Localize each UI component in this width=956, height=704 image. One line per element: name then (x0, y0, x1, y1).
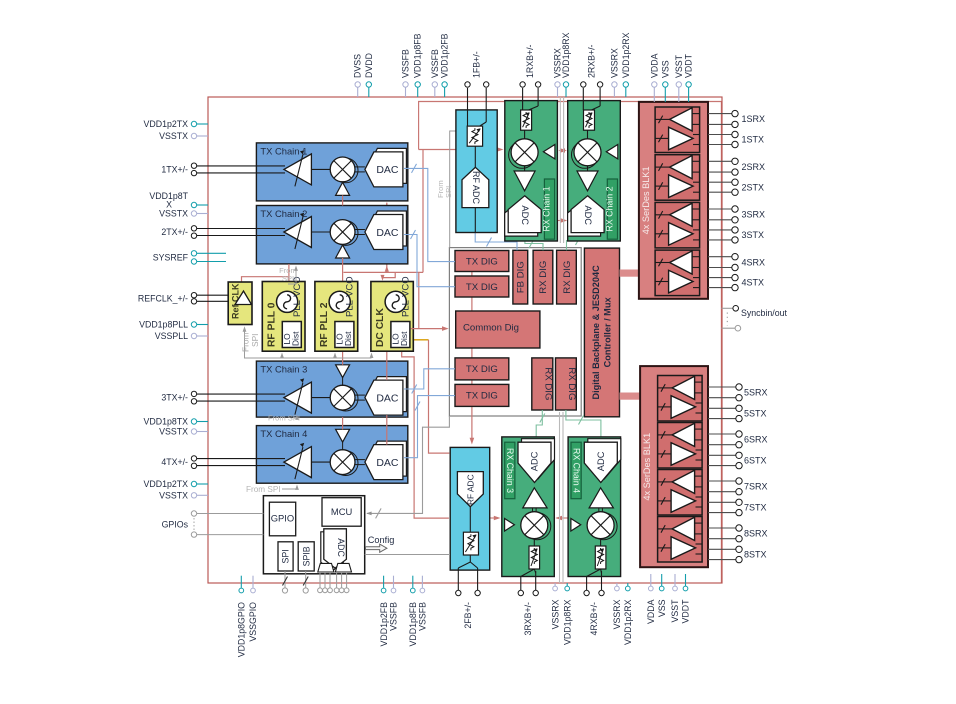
svg-text:TX Chain 1: TX Chain 1 (260, 145, 307, 156)
svg-text:1RXB+/-: 1RXB+/- (525, 44, 535, 78)
svg-text:Dist: Dist (399, 331, 409, 346)
svg-text:5STX: 5STX (744, 409, 767, 419)
svg-text:TX DIG: TX DIG (466, 364, 498, 375)
svg-text:TX DIG: TX DIG (466, 282, 498, 293)
svg-text:Dist: Dist (290, 331, 300, 346)
svg-text:VDD1p2RX: VDD1p2RX (621, 32, 631, 78)
svg-text:RX DIG: RX DIG (566, 367, 577, 400)
svg-text:1STX: 1STX (742, 135, 765, 145)
svg-text:2FB+/-: 2FB+/- (463, 602, 473, 629)
svg-text:VDD1p2FB: VDD1p2FB (440, 33, 450, 78)
svg-text:4STX: 4STX (742, 278, 765, 288)
svg-text:4RXB+/-: 4RXB+/- (589, 602, 599, 636)
svg-text:5SRX: 5SRX (744, 388, 768, 398)
svg-text:VSSTX: VSSTX (159, 209, 188, 219)
svg-text:VDD1p8GPIO: VDD1p8GPIO (237, 602, 247, 657)
svg-text:SPI: SPI (250, 334, 260, 348)
svg-text:6SRX: 6SRX (744, 435, 768, 445)
svg-text:2RXB+/-: 2RXB+/- (587, 44, 597, 78)
svg-text:1TX+/-: 1TX+/- (161, 165, 188, 175)
svg-text:VDD1p8RX: VDD1p8RX (562, 599, 572, 645)
svg-text:SPIB: SPIB (301, 546, 311, 566)
svg-text:VDD1p8FB: VDD1p8FB (408, 602, 418, 647)
svg-text:TX Chain 2: TX Chain 2 (260, 208, 307, 219)
svg-text:SYSREF: SYSREF (153, 252, 189, 262)
svg-text:8STX: 8STX (744, 550, 767, 560)
svg-text:ADC: ADC (520, 205, 530, 225)
svg-text:SPI: SPI (444, 186, 453, 198)
svg-text:2STX: 2STX (742, 182, 765, 192)
svg-text:VSSRX: VSSRX (609, 48, 619, 78)
svg-text:RF ADC: RF ADC (471, 171, 481, 205)
svg-text:DC CLK: DC CLK (375, 308, 386, 347)
svg-text:TX DIG: TX DIG (466, 391, 498, 402)
svg-text:2TX+/-: 2TX+/- (161, 227, 188, 237)
svg-text:3RXB+/-: 3RXB+/- (523, 602, 533, 636)
svg-text:From: From (241, 332, 251, 352)
svg-text:Syncbin/out: Syncbin/out (741, 308, 788, 318)
svg-text:Digital Backplane & JESD204C: Digital Backplane & JESD204C (591, 265, 601, 400)
svg-text:VSSFB: VSSFB (389, 602, 399, 631)
svg-text:VSSFB: VSSFB (401, 49, 411, 78)
svg-text:RF PLL 2: RF PLL 2 (319, 302, 330, 347)
svg-text:GPIOs: GPIOs (162, 519, 189, 529)
svg-text:TX Chain 3: TX Chain 3 (260, 364, 307, 375)
svg-text:MCU: MCU (331, 506, 353, 517)
svg-text:SPI: SPI (282, 274, 294, 283)
svg-text:7SRX: 7SRX (744, 482, 768, 492)
svg-text:VDD1p2FB: VDD1p2FB (379, 602, 389, 647)
svg-text:RF PLL 0: RF PLL 0 (266, 302, 277, 347)
svg-text:ADC: ADC (336, 538, 346, 557)
svg-text:3TX+/-: 3TX+/- (161, 393, 188, 403)
svg-text:RX DIG: RX DIG (538, 261, 549, 294)
svg-text:VSST: VSST (674, 54, 684, 78)
svg-text:1SRX: 1SRX (742, 114, 766, 124)
svg-text:VDDA: VDDA (646, 599, 656, 624)
svg-text:VSSTX: VSSTX (159, 131, 188, 141)
svg-text:PLL-VCO: PLL-VCO (400, 276, 411, 317)
svg-text:VSSRX: VSSRX (612, 599, 622, 629)
svg-text:8SRX: 8SRX (744, 529, 768, 539)
svg-text:VSSFB: VSSFB (418, 602, 428, 631)
svg-text:3STX: 3STX (742, 230, 765, 240)
svg-text:REFCLK_+/-: REFCLK_+/- (138, 293, 188, 303)
svg-text:VDDT: VDDT (681, 599, 691, 624)
svg-text:ADC: ADC (530, 451, 540, 471)
svg-text:RX DIG: RX DIG (543, 367, 554, 400)
svg-text:VSSFB: VSSFB (430, 49, 440, 78)
svg-text:FB DIG: FB DIG (516, 261, 527, 293)
svg-text:Config: Config (368, 535, 395, 545)
svg-text:DAC: DAC (376, 392, 399, 404)
svg-text:VDD1p8FB: VDD1p8FB (413, 33, 423, 78)
svg-text:VDD1p2TX: VDD1p2TX (144, 119, 189, 129)
svg-text:6STX: 6STX (744, 456, 767, 466)
svg-text:VDD1p2TX: VDD1p2TX (144, 479, 189, 489)
svg-text:VDDA: VDDA (649, 53, 659, 78)
svg-text:VDD1p2RX: VDD1p2RX (623, 599, 633, 645)
svg-text:Controller / Mux: Controller / Mux (603, 297, 613, 368)
svg-text:RX Chain 2: RX Chain 2 (604, 186, 614, 231)
svg-text:DAC: DAC (376, 457, 399, 469)
svg-text:RX Chain 3: RX Chain 3 (505, 448, 515, 493)
svg-text:RX Chain 1: RX Chain 1 (542, 186, 552, 231)
svg-text:DAC: DAC (376, 227, 399, 239)
svg-text:4x SerDes BLK1: 4x SerDes BLK1 (641, 166, 651, 234)
svg-text:4SRX: 4SRX (742, 257, 766, 267)
svg-text:From SPI: From SPI (268, 414, 300, 423)
svg-text:4x SerDes BLK1: 4x SerDes BLK1 (642, 433, 652, 501)
svg-text:PLL-VCO: PLL-VCO (345, 276, 356, 317)
svg-text:GPIO: GPIO (271, 513, 294, 524)
svg-text:ADC: ADC (596, 451, 606, 471)
svg-text:DVSS: DVSS (353, 54, 363, 78)
svg-text:VSS: VSS (660, 60, 670, 78)
svg-text:From SPI: From SPI (246, 485, 281, 494)
svg-text:ADC: ADC (583, 205, 593, 225)
svg-text:VSSGPIO: VSSGPIO (248, 602, 258, 642)
svg-text:SPI: SPI (281, 549, 291, 563)
svg-text:RX DIG: RX DIG (562, 261, 573, 294)
svg-text:VSSTX: VSSTX (159, 427, 188, 437)
svg-text:7STX: 7STX (744, 503, 767, 513)
svg-text:VSSTX: VSSTX (159, 490, 188, 500)
svg-text:2SRX: 2SRX (742, 162, 766, 172)
svg-text:VSS: VSS (657, 599, 667, 617)
svg-text:VDD1p8RX: VDD1p8RX (561, 32, 571, 78)
svg-text:TX DIG: TX DIG (466, 256, 498, 267)
svg-text:VSST: VSST (670, 599, 680, 623)
svg-text:4TX+/-: 4TX+/- (161, 457, 188, 467)
svg-text:VSSRX: VSSRX (550, 599, 560, 629)
svg-text:Dist: Dist (343, 331, 353, 346)
svg-text:1FB+/-: 1FB+/- (472, 51, 482, 78)
svg-text:VDD1p8TX: VDD1p8TX (144, 417, 189, 427)
svg-text:DAC: DAC (376, 164, 399, 176)
svg-text:RX Chain 4: RX Chain 4 (571, 448, 581, 493)
svg-text:TX Chain 4: TX Chain 4 (260, 428, 307, 439)
svg-text:VDDT: VDDT (684, 53, 694, 78)
svg-text:RF ADC: RF ADC (465, 474, 475, 505)
svg-text:VSSPLL: VSSPLL (155, 331, 188, 341)
svg-text:3SRX: 3SRX (742, 210, 766, 220)
svg-text:VDD1p8PLL: VDD1p8PLL (139, 320, 188, 330)
svg-text:Common Dig: Common Dig (463, 323, 519, 334)
svg-text:DVDD: DVDD (364, 53, 374, 78)
